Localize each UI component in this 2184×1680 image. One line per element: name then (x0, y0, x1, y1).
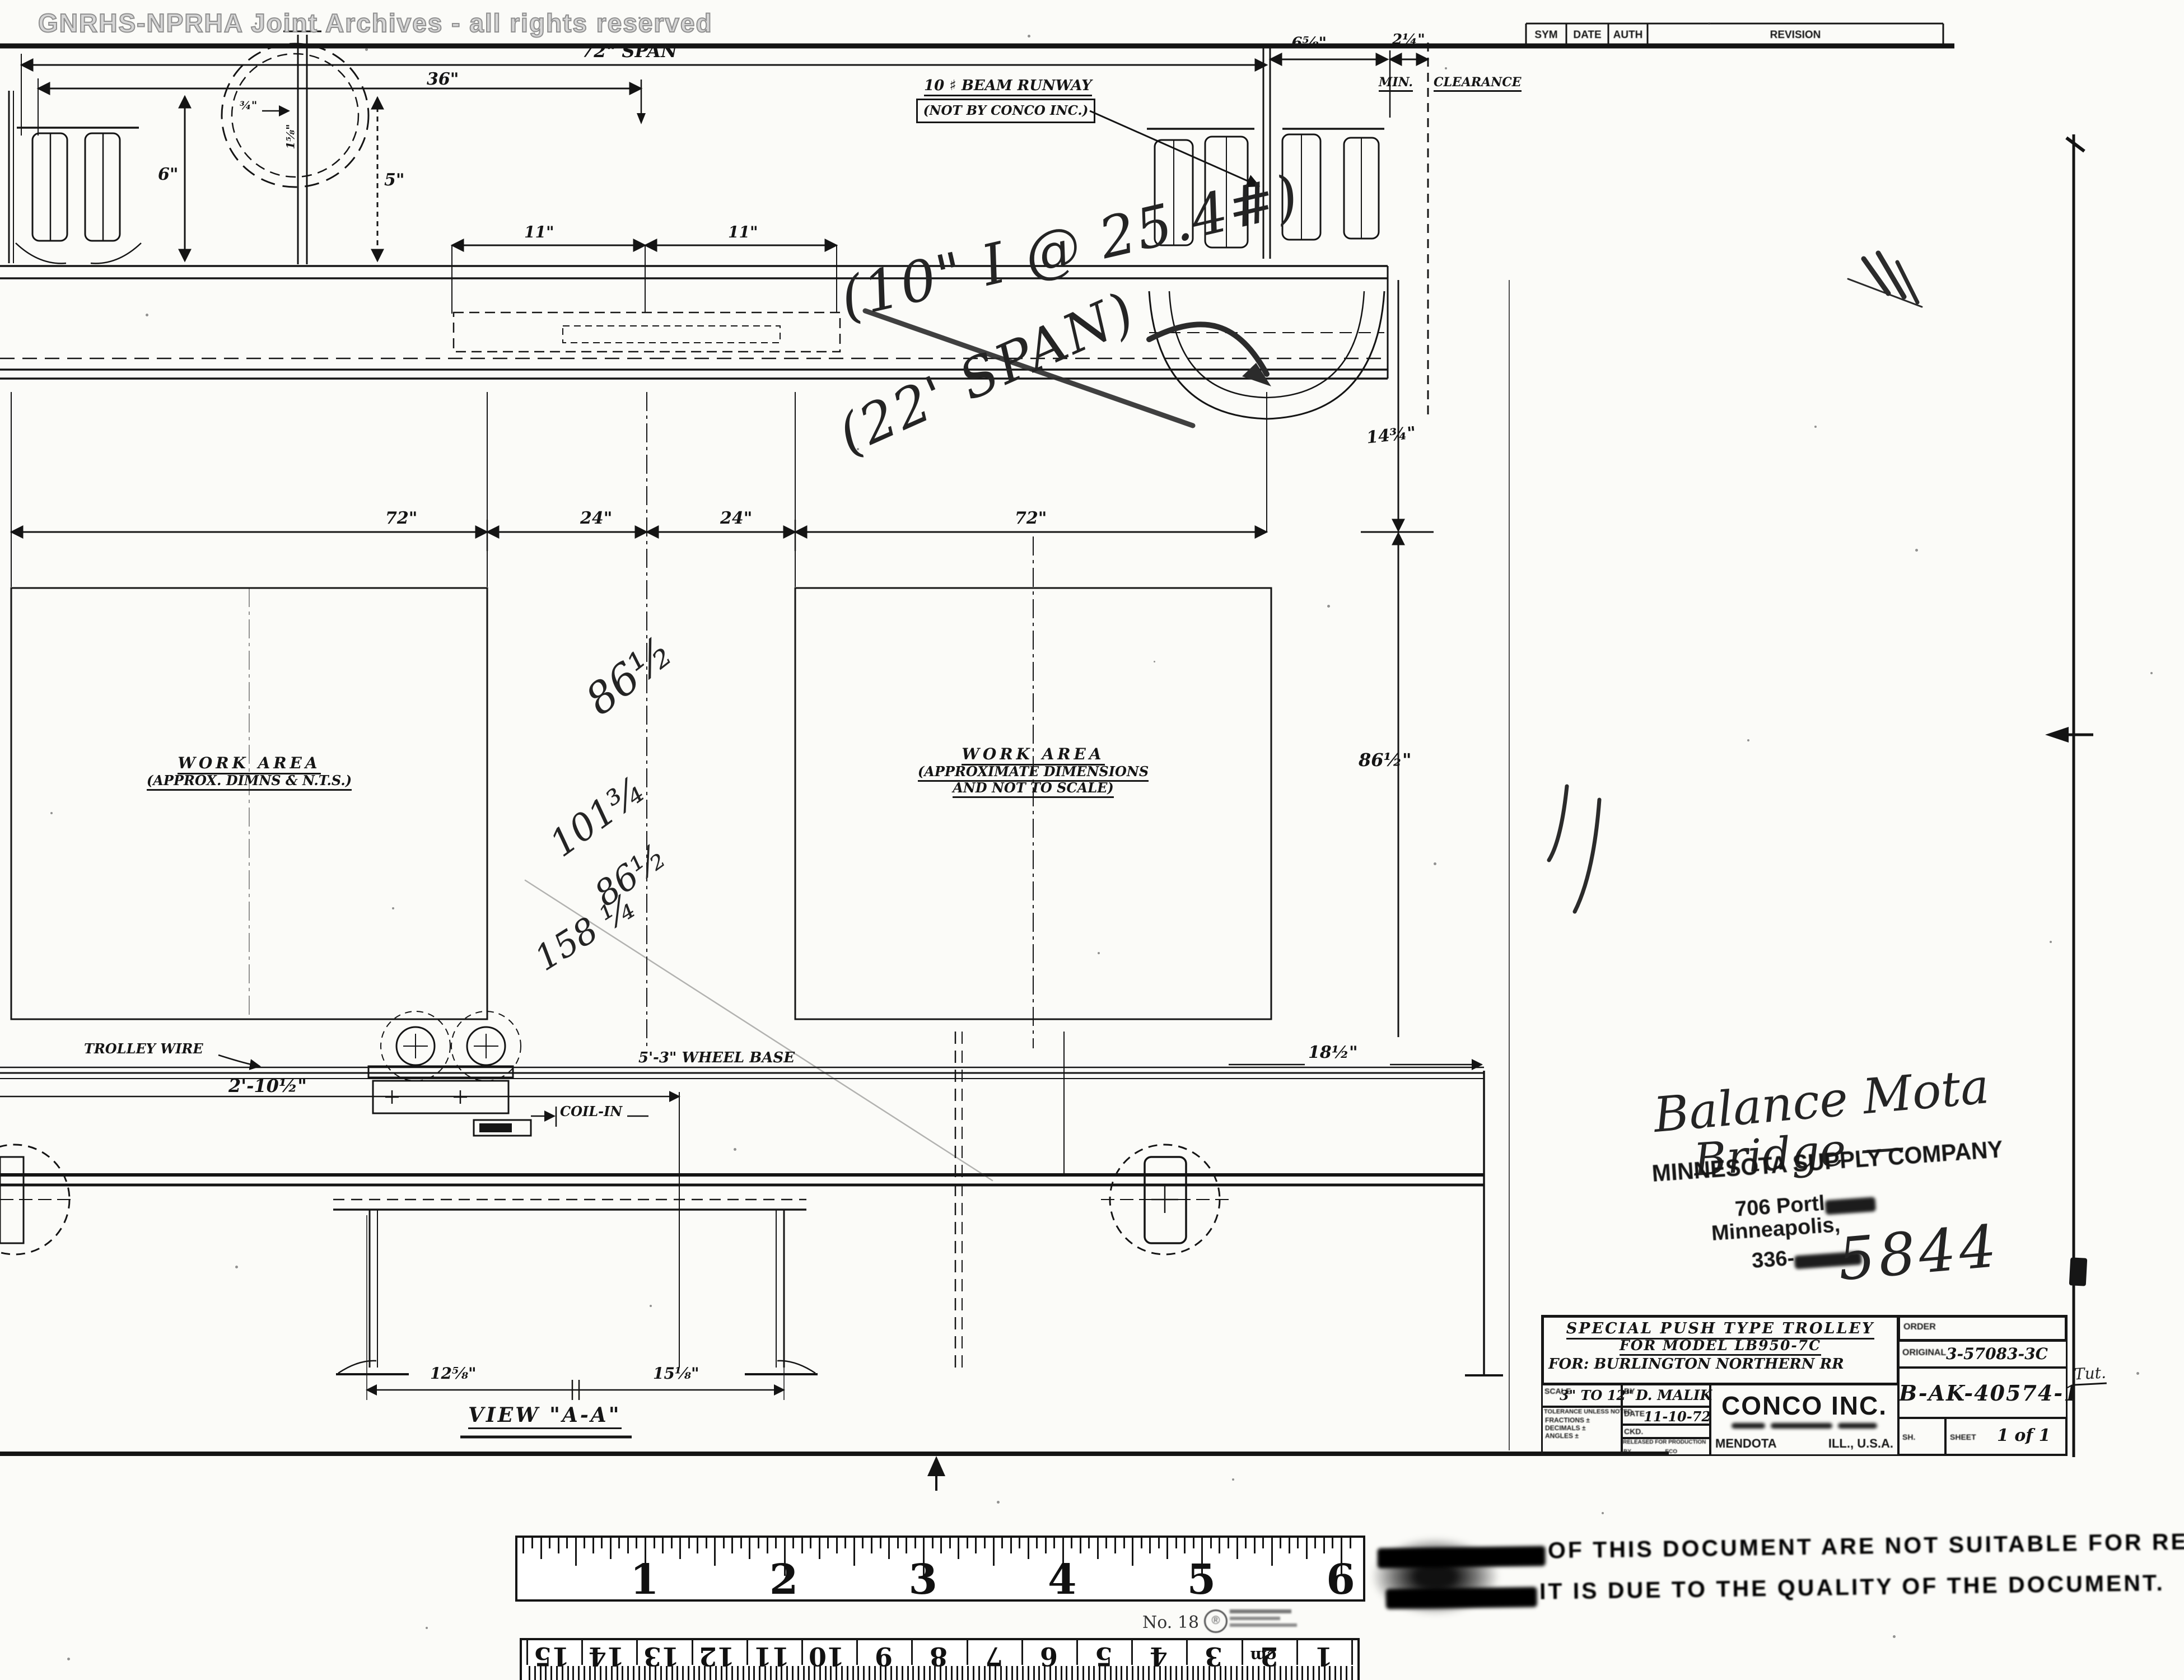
scan-speckle (1232, 1478, 1234, 1481)
date-value: 11-10-72 (1644, 1408, 1711, 1425)
dim-72-right: 72" (1015, 508, 1047, 528)
dim-24-a: 24" (580, 508, 612, 528)
wheel-base-label: 5'-3" WHEEL BASE (638, 1049, 795, 1066)
sh-label: SH. (1902, 1432, 1915, 1441)
drawing-number-cell: B-AK-40574-1 (1897, 1366, 2068, 1419)
stamp-phone-text: 336- (1751, 1247, 1795, 1273)
original-cell: ORIGINAL 3-57083-3C (1897, 1340, 2068, 1369)
dim-36: 36" (427, 69, 459, 89)
dim-72-span: 72" SPAN (581, 40, 677, 62)
revision-col-revision: REVISION (1648, 29, 1943, 41)
dim-5: 5" (384, 170, 405, 190)
work-area-left-line1: WORK AREA (178, 754, 320, 774)
dim-6-58: 6⅝" (1291, 34, 1327, 52)
company-subtitle-smudge-3 (1838, 1423, 1877, 1429)
date-label: DATE (1624, 1409, 1645, 1418)
tolerance-row-fractions: FRACTIONS ± (1545, 1416, 1621, 1424)
dim-12-58: 12⅝" (430, 1364, 477, 1383)
company-state: ILL., U.S.A. (1828, 1436, 1893, 1451)
scan-speckle (1154, 661, 1155, 662)
min-label: MIN. (1379, 75, 1413, 92)
scan-speckle (67, 1658, 70, 1660)
quality-stamp: OF THIS DOCUMENT ARE NOT SUITABLE FOR RE… (1377, 1529, 2157, 1609)
archive-watermark: GNRHS-NPRHA Joint Archives - all rights … (38, 8, 713, 38)
scan-speckle (997, 1501, 1000, 1504)
scan-speckle (1098, 952, 1100, 954)
released-by-label: BY (1623, 1449, 1631, 1455)
dim-86-12-right: 86½" (1359, 749, 1412, 771)
scan-speckle (1445, 67, 1447, 69)
original-label: ORIGINAL (1902, 1348, 1946, 1358)
coil-in-label: COIL-IN (560, 1103, 622, 1119)
work-area-left-label: WORK AREA (APPROX. DIMNS & N.T.S.) (92, 754, 406, 788)
scan-speckle (650, 1305, 652, 1307)
view-aa-label: VIEW "A-A" (468, 1403, 622, 1429)
quality-stamp-line1-smudge (1377, 1546, 1545, 1568)
cm-ruler: 151413121110987654321cm (520, 1638, 1360, 1680)
runway-note-title: 10 ♯ BEAM RUNWAY (924, 77, 1092, 96)
title-block: SPECIAL PUSH TYPE TROLLEY FOR MODEL LB95… (1541, 1315, 2068, 1456)
sh-cell: SH. (1897, 1417, 1947, 1456)
drawing-for-line: FOR: BURLINGTON NORTHERN RR (1548, 1356, 1897, 1373)
dim-2-10-12: 2'-10½" (228, 1075, 307, 1096)
stamp-addr1-smudge (1824, 1197, 1876, 1215)
scale-cell: SCALE 3" TO 12" (1541, 1383, 1623, 1408)
tolerance-row-decimals: DECIMALS ± (1545, 1424, 1621, 1432)
company-name: CONCO INC. (1711, 1390, 1898, 1421)
revision-col-auth: AUTH (1608, 29, 1648, 41)
dim-15-18: 15⅛" (653, 1364, 699, 1383)
scan-speckle (638, 17, 641, 19)
ruler-brand-smudge-3 (1230, 1623, 1297, 1627)
ruler-brand-smudge-1 (1230, 1609, 1291, 1613)
scan-speckle (1028, 35, 1030, 38)
work-area-right-label: WORK AREA (APPROXIMATE DIMENSIONS AND NO… (876, 745, 1190, 796)
edge-ink-blob (2069, 1257, 2088, 1286)
dim-11-left: 11" (524, 223, 554, 241)
company-subtitle-illegible (1711, 1421, 1898, 1431)
company-subtitle-smudge-1 (1732, 1423, 1765, 1429)
sheet-value: 1 of 1 (1997, 1426, 2051, 1445)
inch-ruler: 123456 (515, 1536, 1365, 1602)
scan-speckle (146, 314, 148, 316)
ruler-note: No. 18 (1142, 1613, 1199, 1632)
scan-speckle (2136, 1372, 2139, 1375)
by-value: D. MALIK (1636, 1387, 1712, 1403)
scan-speckle (1747, 739, 1749, 741)
dim-6: 6" (158, 165, 179, 184)
ckd-label: CKD. (1624, 1427, 1643, 1436)
order-label: ORDER (1903, 1322, 1936, 1332)
revision-col-sym: SYM (1526, 29, 1566, 41)
title-block-title-cell: SPECIAL PUSH TYPE TROLLEY FOR MODEL LB95… (1541, 1315, 1900, 1385)
dim-three-quarter: ¾" (240, 99, 257, 112)
work-area-right-line1: WORK AREA (962, 745, 1104, 766)
by-label: BY (1624, 1387, 1635, 1396)
drawing-title-line2-wrap: FOR MODEL LB950-7C (1544, 1337, 1897, 1354)
scan-speckle (1915, 549, 1918, 552)
scan-speckle (2050, 941, 2052, 943)
dim-11-right: 11" (728, 223, 758, 241)
tolerance-row-angles: ANGLES ± (1545, 1432, 1621, 1440)
drawing-number: B-AK-40574-1 (1899, 1380, 2066, 1406)
work-area-right-line3: AND NOT TO SCALE) (953, 780, 1113, 798)
released-label: RELEASED FOR PRODUCTION (1623, 1439, 1709, 1445)
date-cell: DATE 11-10-72 (1621, 1406, 1711, 1426)
drawing-title-line1: SPECIAL PUSH TYPE TROLLEY (1566, 1320, 1875, 1340)
scan-speckle (365, 48, 368, 51)
scan-speckle (1893, 1635, 1896, 1638)
released-cell: RELEASED FOR PRODUCTION BY ECO (1621, 1437, 1711, 1456)
tolerance-header: TOLERANCE UNLESS NOTED (1544, 1408, 1620, 1415)
released-eco-label: ECO (1665, 1449, 1677, 1455)
scan-speckle (255, 22, 257, 25)
clearance-label: CLEARANCE (1434, 75, 1522, 92)
drawing-title-line1-wrap: SPECIAL PUSH TYPE TROLLEY (1544, 1320, 1897, 1337)
ruler-brand-smudge-2 (1230, 1617, 1280, 1620)
company-city: MENDOTA (1715, 1436, 1777, 1451)
scan-speckle (392, 907, 394, 909)
dim-72-left: 72" (385, 508, 417, 528)
scan-speckle (235, 1266, 238, 1268)
scan-speckle (50, 812, 53, 814)
sheet-label: SHEET (1950, 1432, 1976, 1441)
scan-speckle (1327, 605, 1330, 608)
scanned-drawing-sheet: GNRHS-NPRHA Joint Archives - all rights … (0, 0, 2184, 1680)
ruler-brand-text-illegible (1230, 1609, 1297, 1627)
dim-2-14: 2¼" (1392, 31, 1425, 48)
scan-speckle (734, 1148, 736, 1151)
ruler-brand-logo: ® (1204, 1609, 1228, 1633)
scan-speckle (1814, 426, 1817, 428)
original-value: 3-57083-3C (1946, 1345, 2048, 1363)
drawing-title-line2: FOR MODEL LB950-7C (1620, 1337, 1821, 1356)
trolley-wire-label: TROLLEY WIRE (84, 1040, 203, 1057)
scan-speckle (857, 448, 859, 450)
dim-1-58: 1⅝" (284, 124, 297, 149)
dim-24-b: 24" (720, 508, 752, 528)
runway-note-box: (NOT BY CONCO INC.) (916, 99, 1095, 123)
scan-speckle (1602, 1512, 1604, 1514)
quality-stamp-line2-smudge (1385, 1586, 1537, 1609)
sheet-cell: SHEET 1 of 1 (1944, 1417, 2068, 1456)
dim-18-12: 18½" (1308, 1043, 1358, 1062)
scan-speckle (1708, 22, 1710, 25)
quality-stamp-line2: IT IS DUE TO THE QUALITY OF THE DOCUMENT… (1539, 1570, 2165, 1604)
company-cell: CONCO INC. MENDOTA ILL., U.S.A. (1709, 1383, 1900, 1456)
scan-speckle (426, 1627, 428, 1629)
handwritten-number-5844: 5844 (1835, 1212, 2002, 1294)
tolerance-cell: TOLERANCE UNLESS NOTED FRACTIONS ± DECIM… (1541, 1406, 1623, 1456)
company-subtitle-smudge-2 (1771, 1423, 1832, 1429)
order-cell: ORDER (1897, 1315, 2068, 1342)
work-area-left-line2: (APPROX. DIMNS & N.T.S.) (147, 772, 352, 791)
by-cell: BY D. MALIK (1621, 1383, 1711, 1408)
revision-col-date: DATE (1566, 29, 1608, 41)
scan-speckle (1434, 862, 1436, 865)
scan-speckle (2150, 672, 2153, 674)
